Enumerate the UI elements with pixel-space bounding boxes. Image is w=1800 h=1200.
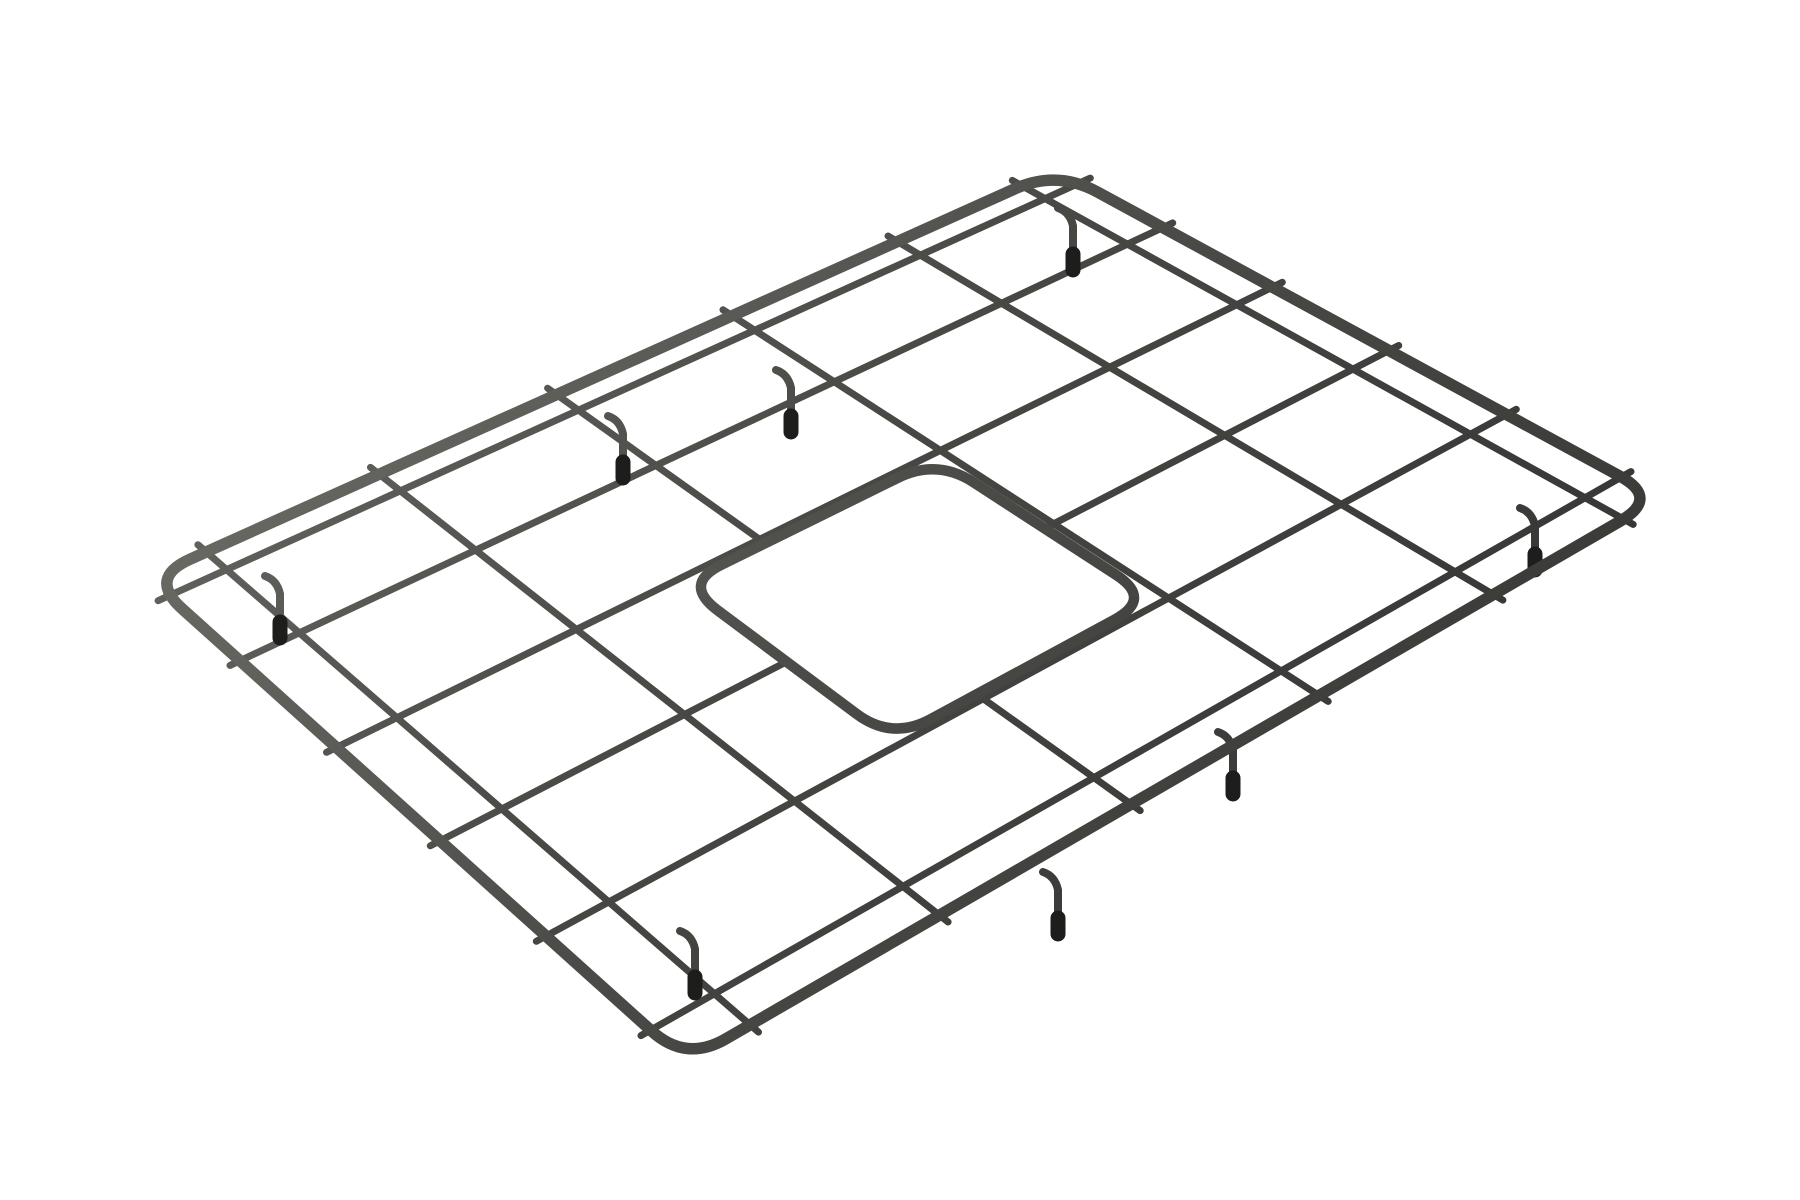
product-photo-canvas [0, 0, 1800, 1200]
grid-wire-split-lower [430, 658, 794, 846]
rubber-foot [1043, 872, 1058, 934]
drain-ring-wire [701, 469, 1134, 728]
grid-wire [327, 282, 1283, 752]
sink-grid-image [0, 0, 1800, 1200]
rubber-foot [608, 416, 623, 478]
rubber-foot [1058, 208, 1073, 270]
grid-wire [1012, 180, 1633, 524]
drain-cutout-ring [701, 469, 1134, 728]
rubber-foot [1520, 508, 1535, 570]
rubber-foot [776, 370, 791, 432]
grid-wire-split-right [970, 689, 1141, 811]
grid-wire-split-left [548, 388, 773, 548]
